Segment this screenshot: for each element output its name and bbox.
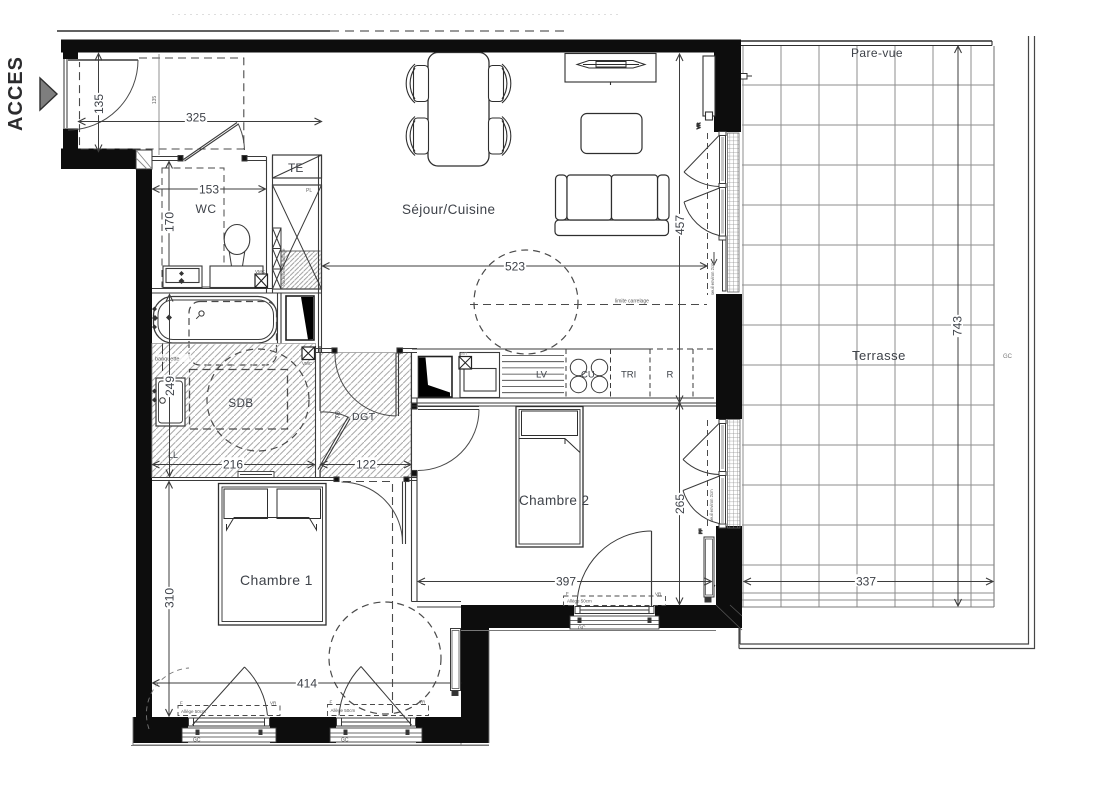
- svg-text:Allège 50cm: Allège 50cm: [181, 709, 206, 714]
- svg-text:PL: PL: [306, 188, 312, 194]
- svg-text:TE: TE: [288, 161, 303, 175]
- svg-text:325: 325: [186, 110, 206, 124]
- svg-text:523: 523: [505, 259, 525, 273]
- svg-text:414: 414: [297, 676, 317, 690]
- svg-text:GC: GC: [193, 738, 201, 744]
- svg-text:337: 337: [856, 574, 876, 588]
- svg-text:VMC: VMC: [255, 269, 266, 274]
- svg-text:Séjour/Cuisine: Séjour/Cuisine: [402, 202, 495, 217]
- svg-text:743: 743: [950, 316, 964, 336]
- svg-text:310: 310: [162, 588, 176, 608]
- svg-text:457: 457: [673, 215, 687, 235]
- svg-text:VR: VR: [696, 122, 701, 129]
- svg-text:seuil environ 2cm: seuil environ 2cm: [710, 262, 715, 295]
- svg-text:265: 265: [673, 494, 687, 514]
- svg-text:limite carrelage: limite carrelage: [615, 299, 649, 305]
- svg-text:122: 122: [356, 457, 376, 471]
- svg-text:Pare-vue: Pare-vue: [851, 46, 903, 60]
- svg-text:SDB: SDB: [228, 398, 253, 410]
- svg-text:WC: WC: [196, 202, 217, 216]
- svg-text:Chambre 1: Chambre 1: [240, 572, 313, 588]
- svg-text:VR: VR: [655, 592, 662, 597]
- svg-text:TRI: TRI: [621, 370, 636, 381]
- svg-text:F: F: [330, 700, 333, 705]
- svg-text:seuil environ 2cm: seuil environ 2cm: [709, 489, 714, 522]
- svg-text:76: 76: [335, 411, 342, 419]
- svg-text:Nourrices chauffage: Nourrices chauffage: [281, 248, 286, 286]
- svg-text:CU: CU: [581, 370, 595, 381]
- svg-text:banquette: banquette: [155, 357, 179, 363]
- svg-text:170: 170: [162, 212, 176, 232]
- svg-text:Allège 50cm: Allège 50cm: [567, 599, 592, 604]
- svg-text:VMC: VMC: [302, 361, 313, 366]
- svg-text:DGT: DGT: [352, 411, 376, 423]
- svg-text:135: 135: [92, 94, 106, 114]
- svg-text:LMT: LMT: [459, 351, 468, 356]
- svg-text:VR: VR: [270, 701, 277, 706]
- svg-text:397: 397: [556, 574, 576, 588]
- svg-text:GC: GC: [341, 738, 349, 744]
- svg-text:Chambre 2: Chambre 2: [519, 493, 589, 508]
- svg-text:153: 153: [199, 182, 219, 196]
- svg-text:216: 216: [223, 457, 243, 471]
- svg-text:VR: VR: [419, 700, 426, 705]
- svg-text:ACCES: ACCES: [5, 56, 27, 131]
- svg-text:Terrasse: Terrasse: [852, 348, 906, 363]
- svg-text:F: F: [180, 701, 183, 706]
- svg-text:249: 249: [163, 376, 177, 396]
- svg-text:LV: LV: [536, 370, 548, 381]
- svg-text:GC: GC: [1003, 354, 1013, 360]
- svg-text:135: 135: [152, 96, 158, 105]
- svg-text:F: F: [566, 591, 569, 596]
- svg-text:GC: GC: [578, 626, 586, 632]
- svg-text:R: R: [667, 370, 674, 381]
- svg-text:PF: PF: [698, 528, 703, 534]
- svg-text:Allège 50cm: Allège 50cm: [331, 708, 356, 713]
